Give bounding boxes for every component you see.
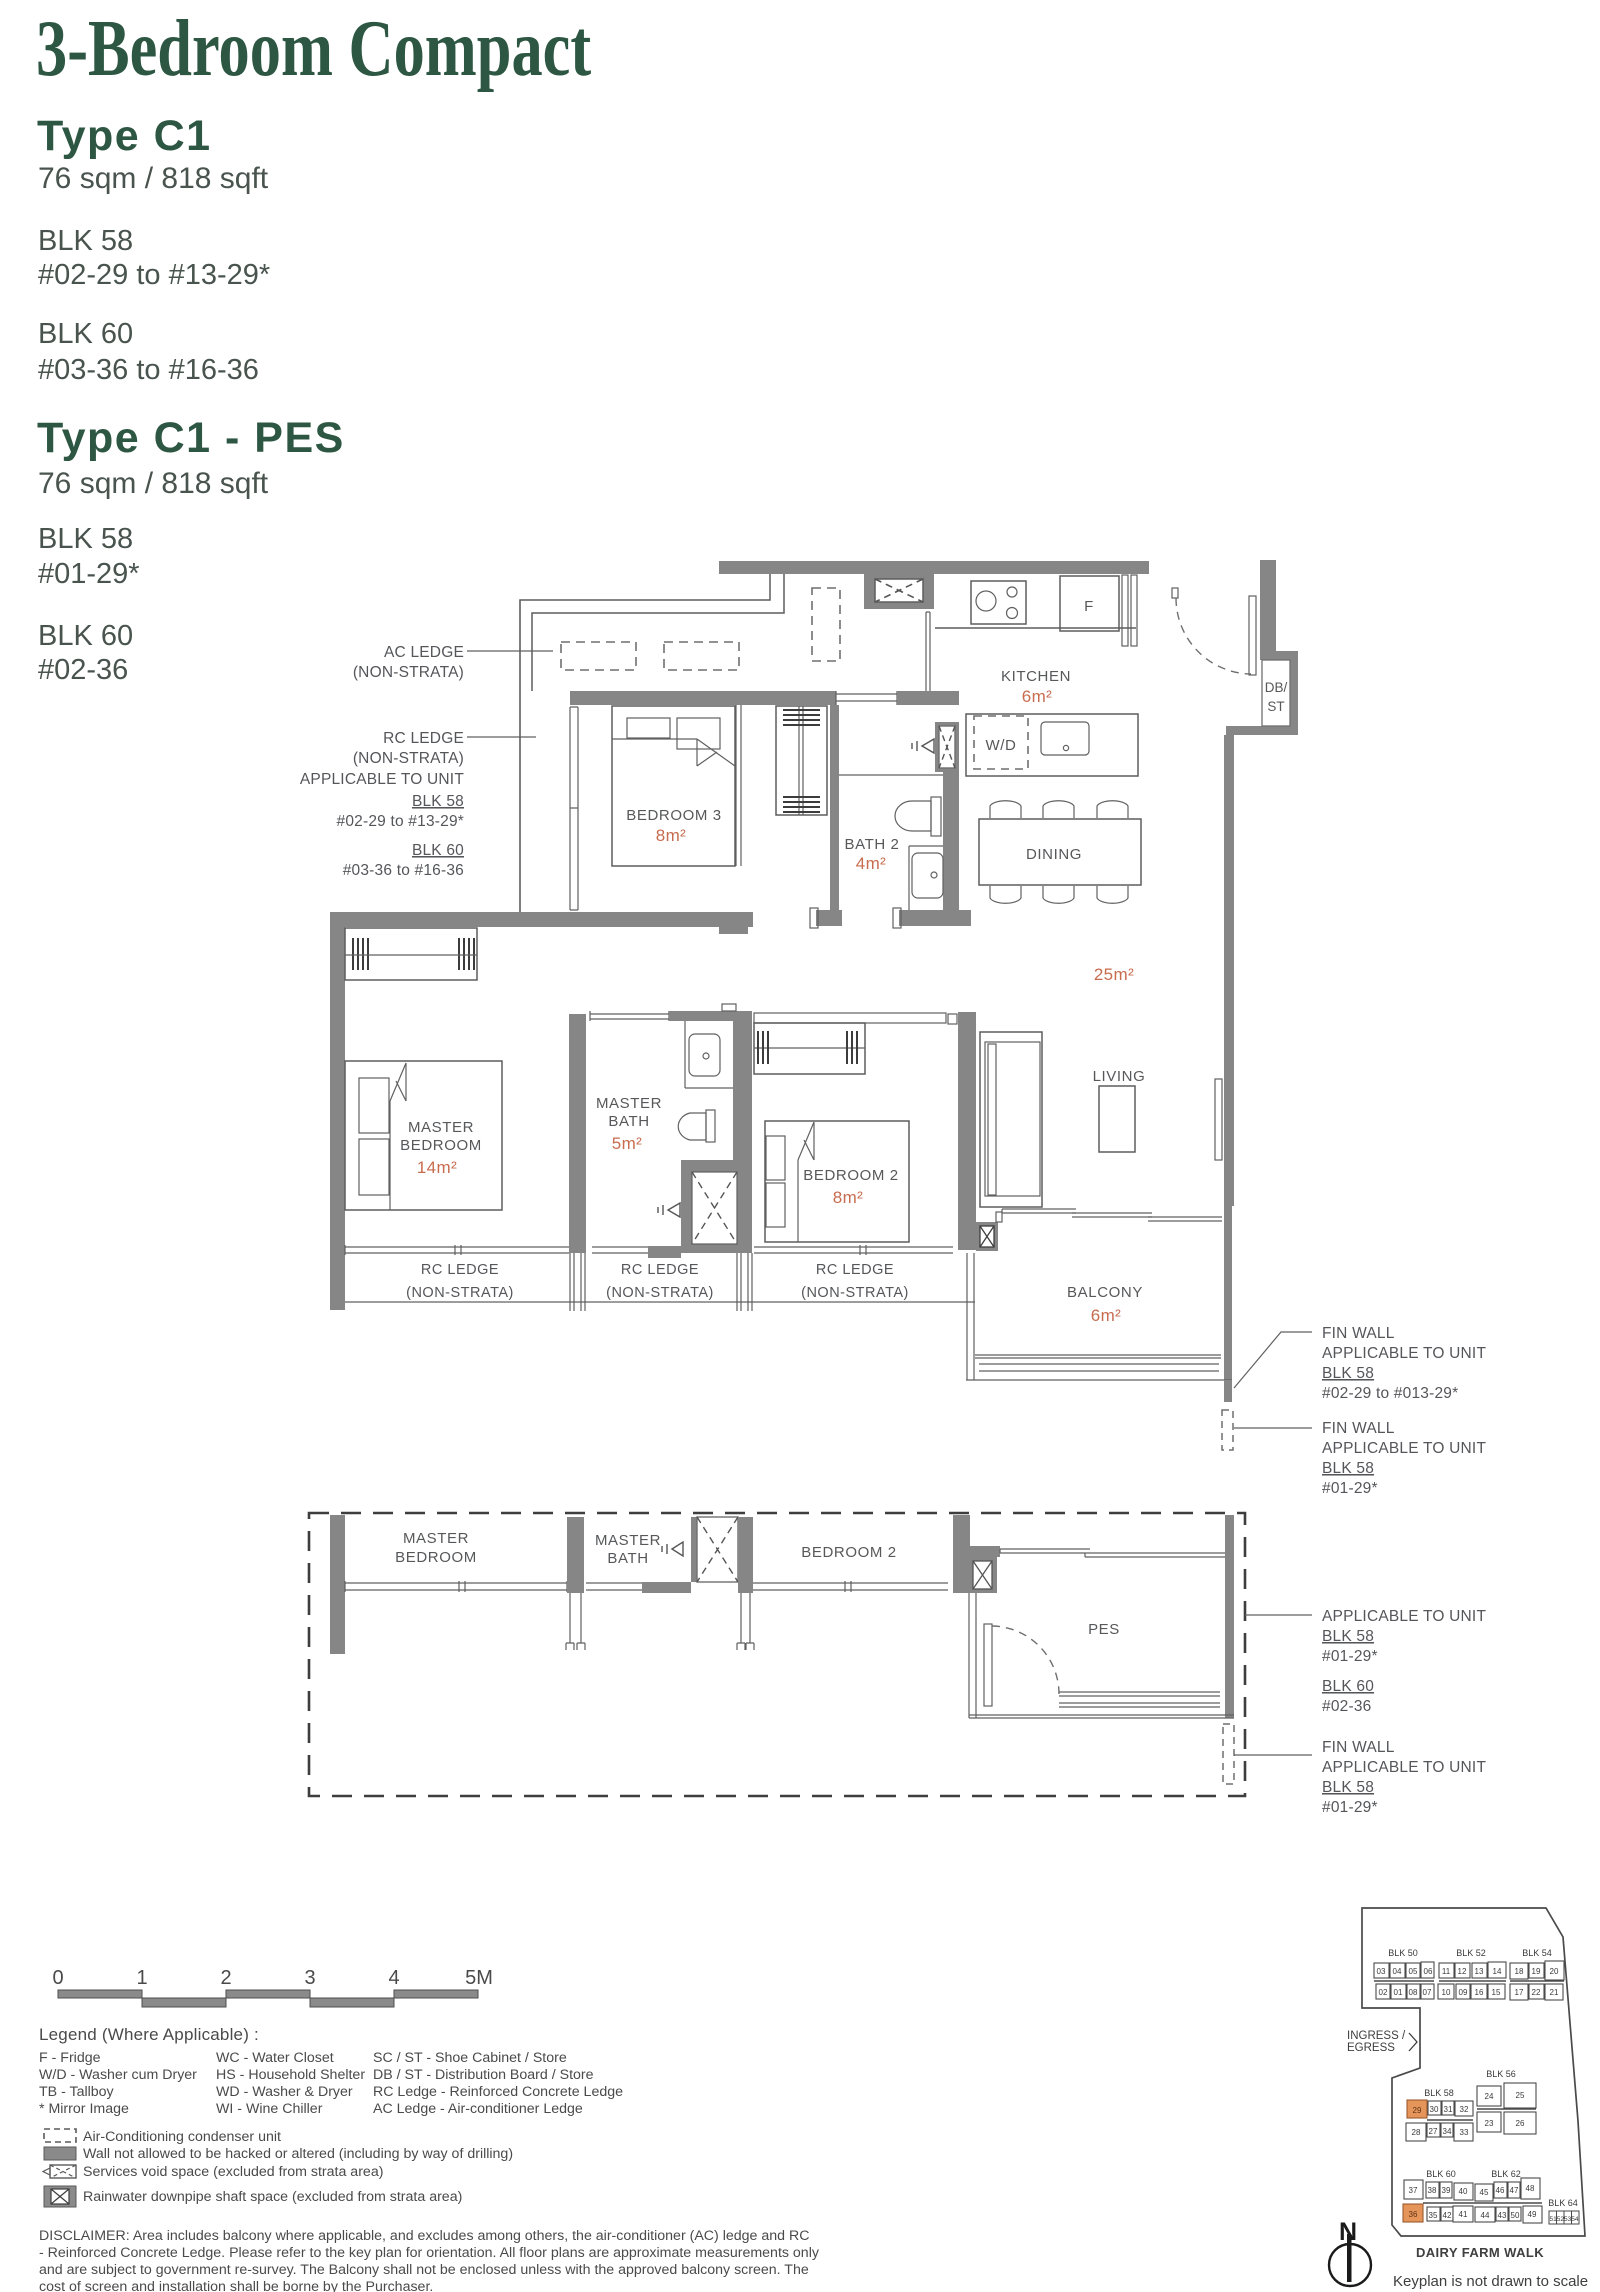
svg-text:08: 08	[1409, 1988, 1418, 1997]
svg-text:33: 33	[1460, 2128, 1469, 2137]
svg-text:50: 50	[1511, 2211, 1520, 2220]
svg-text:05: 05	[1409, 1967, 1418, 1976]
svg-text:FIN WALL: FIN WALL	[1322, 1739, 1395, 1756]
svg-text:36: 36	[1409, 2210, 1418, 2219]
svg-text:24: 24	[1485, 2092, 1494, 2101]
svg-text:KITCHEN: KITCHEN	[1001, 668, 1071, 685]
svg-text:02: 02	[1379, 1988, 1388, 1997]
svg-text:BLK 60: BLK 60	[38, 318, 133, 350]
svg-text:DB/: DB/	[1265, 680, 1288, 695]
svg-text:45: 45	[1480, 2188, 1489, 2197]
svg-text:SC / ST - Shoe Cabinet / Store: SC / ST - Shoe Cabinet / Store	[373, 2050, 567, 2066]
svg-text:BLK 58: BLK 58	[1322, 1628, 1374, 1645]
svg-text:43: 43	[1498, 2211, 1507, 2220]
svg-text:BEDROOM 2: BEDROOM 2	[801, 1544, 896, 1561]
svg-text:and are subject to government: and are subject to government re-survey.…	[39, 2262, 809, 2278]
svg-text:FIN WALL: FIN WALL	[1322, 1420, 1395, 1437]
svg-text:2: 2	[220, 1967, 231, 1989]
svg-text:F: F	[1084, 598, 1094, 615]
svg-text:(NON-STRATA): (NON-STRATA)	[353, 750, 464, 767]
svg-text:#01-29*: #01-29*	[1322, 1799, 1378, 1816]
svg-text:#01-29*: #01-29*	[1322, 1648, 1378, 1665]
svg-text:BLK 58: BLK 58	[1322, 1779, 1374, 1796]
svg-text:BEDROOM: BEDROOM	[395, 1549, 477, 1566]
svg-text:(NON-STRATA): (NON-STRATA)	[406, 1285, 514, 1301]
svg-text:BEDROOM 2: BEDROOM 2	[803, 1167, 898, 1184]
svg-text:BATH: BATH	[607, 1550, 648, 1567]
svg-text:MASTER: MASTER	[596, 1095, 662, 1112]
svg-text:04: 04	[1393, 1967, 1402, 1976]
svg-text:F - Fridge: F - Fridge	[39, 2050, 101, 2066]
svg-text:8m²: 8m²	[833, 1188, 863, 1207]
svg-text:DISCLAIMER: Area includes balc: DISCLAIMER: Area includes balcony where …	[39, 2228, 809, 2244]
svg-text:W/D: W/D	[986, 737, 1017, 754]
svg-text:26: 26	[1516, 2119, 1525, 2128]
svg-text:PES: PES	[1088, 1621, 1120, 1638]
svg-text:MASTER: MASTER	[595, 1532, 661, 1549]
svg-text:06: 06	[1424, 1967, 1433, 1976]
svg-text:BLK 58: BLK 58	[412, 793, 464, 810]
svg-text:FIN WALL: FIN WALL	[1322, 1325, 1395, 1342]
svg-text:#01-29*: #01-29*	[38, 558, 140, 590]
svg-text:BLK 58: BLK 58	[1322, 1460, 1374, 1477]
svg-text:RC LEDGE: RC LEDGE	[816, 1262, 894, 1278]
svg-text:#02-36: #02-36	[1322, 1698, 1371, 1715]
svg-text:BLK 54: BLK 54	[1522, 1948, 1552, 1958]
svg-text:34: 34	[1443, 2127, 1452, 2136]
svg-text:#02-29 to #13-29*: #02-29 to #13-29*	[38, 259, 270, 291]
svg-text:14: 14	[1493, 1967, 1502, 1976]
svg-text:APPLICABLE TO UNIT: APPLICABLE TO UNIT	[1322, 1608, 1486, 1625]
svg-text:BLK 62: BLK 62	[1491, 2169, 1521, 2179]
svg-text:28: 28	[1412, 2128, 1421, 2137]
svg-text:76 sqm / 818 sqft: 76 sqm / 818 sqft	[38, 467, 269, 500]
svg-text:BATH: BATH	[608, 1113, 649, 1130]
svg-text:#02-29 to #013-29*: #02-29 to #013-29*	[1322, 1385, 1458, 1402]
svg-text:RC Ledge - Reinforced Concrete: RC Ledge - Reinforced Concrete Ledge	[373, 2084, 623, 2100]
svg-text:#03-36 to #16-36: #03-36 to #16-36	[38, 354, 259, 386]
svg-text:DAIRY FARM WALK: DAIRY FARM WALK	[1416, 2245, 1544, 2260]
svg-text:32: 32	[1460, 2105, 1469, 2114]
svg-text:47: 47	[1510, 2186, 1519, 2195]
svg-text:46: 46	[1496, 2186, 1505, 2195]
svg-text:15: 15	[1492, 1988, 1501, 1997]
svg-text:RC LEDGE: RC LEDGE	[621, 1262, 699, 1278]
svg-text:41: 41	[1459, 2210, 1468, 2219]
svg-text:4: 4	[388, 1967, 399, 1989]
svg-text:Keyplan is not drawn to scale: Keyplan is not drawn to scale	[1393, 2273, 1588, 2290]
svg-text:39: 39	[1442, 2186, 1451, 2195]
svg-text:BATH 2: BATH 2	[844, 836, 899, 853]
svg-text:07: 07	[1423, 1988, 1432, 1997]
svg-text:4m²: 4m²	[856, 854, 886, 873]
svg-text:Legend (Where Applicable) :: Legend (Where Applicable) :	[39, 2025, 259, 2044]
svg-text:BLK 58: BLK 58	[38, 523, 133, 555]
svg-text:BLK 60: BLK 60	[38, 620, 133, 652]
svg-text:BLK 64: BLK 64	[1548, 2198, 1578, 2208]
svg-text:22: 22	[1532, 1988, 1541, 1997]
svg-text:(NON-STRATA): (NON-STRATA)	[801, 1285, 909, 1301]
svg-text:13: 13	[1475, 1967, 1484, 1976]
svg-text:WC - Water Closet: WC - Water Closet	[216, 2050, 334, 2066]
svg-text:MASTER: MASTER	[408, 1119, 474, 1136]
svg-text:WI - Wine Chiller: WI - Wine Chiller	[216, 2101, 323, 2117]
svg-text:37: 37	[1409, 2186, 1418, 2195]
svg-text:BALCONY: BALCONY	[1067, 1284, 1143, 1301]
svg-text:#02-29 to #13-29*: #02-29 to #13-29*	[337, 813, 465, 830]
svg-text:51525354: 51525354	[1550, 2216, 1579, 2223]
svg-text:3-Bedroom Compact: 3-Bedroom Compact	[36, 4, 591, 93]
svg-text:25: 25	[1516, 2091, 1525, 2100]
svg-text:DB / ST - Distribution Board /: DB / ST - Distribution Board / Store	[373, 2067, 594, 2083]
svg-text:BLK 60: BLK 60	[1426, 2169, 1456, 2179]
svg-text:Rainwater downpipe shaft space: Rainwater downpipe shaft space (excluded…	[83, 2189, 462, 2205]
svg-text:3: 3	[304, 1967, 315, 1989]
svg-text:19: 19	[1532, 1967, 1541, 1976]
svg-text:10: 10	[1442, 1988, 1451, 1997]
svg-text:W/D - Washer cum Dryer: W/D - Washer cum Dryer	[39, 2067, 197, 2083]
svg-text:49: 49	[1528, 2210, 1537, 2219]
svg-text:DINING: DINING	[1026, 846, 1082, 863]
svg-text:APPLICABLE TO UNIT: APPLICABLE TO UNIT	[1322, 1759, 1486, 1776]
svg-text:42: 42	[1443, 2211, 1452, 2220]
svg-text:1: 1	[136, 1967, 147, 1989]
svg-text:EGRESS: EGRESS	[1347, 2042, 1395, 2054]
svg-text:WD - Washer & Dryer: WD - Washer & Dryer	[216, 2084, 353, 2100]
svg-text:38: 38	[1428, 2186, 1437, 2195]
svg-text:48: 48	[1526, 2184, 1535, 2193]
svg-text:cost of screen and installatio: cost of screen and installation shall be…	[39, 2279, 433, 2292]
svg-text:Type C1 - PES: Type C1 - PES	[37, 414, 345, 462]
svg-text:03: 03	[1377, 1967, 1386, 1976]
svg-text:25m²: 25m²	[1094, 965, 1134, 984]
svg-text:0: 0	[52, 1967, 63, 1989]
svg-text:11: 11	[1442, 1967, 1451, 1976]
svg-text:6m²: 6m²	[1091, 1306, 1121, 1325]
svg-text:MASTER: MASTER	[403, 1530, 469, 1547]
svg-text:APPLICABLE TO UNIT: APPLICABLE TO UNIT	[1322, 1440, 1486, 1457]
svg-text:40: 40	[1459, 2187, 1468, 2196]
svg-text:30: 30	[1430, 2105, 1439, 2114]
svg-text:5m²: 5m²	[612, 1134, 642, 1153]
svg-text:#03-36 to #16-36: #03-36 to #16-36	[343, 862, 464, 879]
svg-text:01: 01	[1394, 1988, 1403, 1997]
svg-text:16: 16	[1475, 1988, 1484, 1997]
svg-text:BLK 52: BLK 52	[1456, 1948, 1486, 1958]
svg-text:#02-36: #02-36	[38, 654, 128, 686]
svg-text:APPLICABLE TO UNIT: APPLICABLE TO UNIT	[300, 771, 464, 788]
svg-text:LIVING: LIVING	[1093, 1068, 1146, 1085]
svg-text:31: 31	[1444, 2105, 1453, 2114]
svg-text:TB - Tallboy: TB - Tallboy	[39, 2084, 115, 2100]
svg-text:RC LEDGE: RC LEDGE	[383, 730, 464, 747]
svg-text:29: 29	[1413, 2106, 1422, 2115]
svg-text:27: 27	[1429, 2127, 1438, 2136]
svg-text:BLK 56: BLK 56	[1486, 2069, 1516, 2079]
svg-text:23: 23	[1485, 2119, 1494, 2128]
svg-text:5M: 5M	[465, 1967, 493, 1989]
svg-text:APPLICABLE TO UNIT: APPLICABLE TO UNIT	[1322, 1345, 1486, 1362]
svg-text:12: 12	[1458, 1967, 1467, 1976]
svg-text:AC LEDGE: AC LEDGE	[384, 644, 464, 661]
svg-text:#01-29*: #01-29*	[1322, 1480, 1378, 1497]
svg-text:20: 20	[1550, 1967, 1559, 1976]
svg-text:Wall not allowed to be hacked: Wall not allowed to be hacked or altered…	[83, 2146, 513, 2162]
svg-text:* Mirror Image: * Mirror Image	[39, 2101, 129, 2117]
svg-text:INGRESS /: INGRESS /	[1347, 2030, 1406, 2042]
svg-text:76 sqm / 818 sqft: 76 sqm / 818 sqft	[38, 162, 269, 195]
svg-text:RC LEDGE: RC LEDGE	[421, 1262, 499, 1278]
svg-text:Air-Conditioning condenser uni: Air-Conditioning condenser unit	[83, 2129, 281, 2145]
svg-text:(NON-STRATA): (NON-STRATA)	[353, 664, 464, 681]
svg-text:BLK 60: BLK 60	[412, 842, 464, 859]
svg-text:BEDROOM: BEDROOM	[400, 1137, 482, 1154]
svg-text:(NON-STRATA): (NON-STRATA)	[606, 1285, 714, 1301]
svg-text:BLK 58: BLK 58	[1322, 1365, 1374, 1382]
svg-text:18: 18	[1515, 1967, 1524, 1976]
svg-text:44: 44	[1481, 2211, 1490, 2220]
svg-text:35: 35	[1429, 2211, 1438, 2220]
svg-text:BLK 50: BLK 50	[1388, 1948, 1418, 1958]
svg-text:09: 09	[1459, 1988, 1468, 1997]
svg-text:21: 21	[1550, 1988, 1559, 1997]
svg-text:Services void space (excluded: Services void space (excluded from strat…	[83, 2164, 383, 2180]
svg-text:8m²: 8m²	[656, 826, 686, 845]
svg-text:BLK 60: BLK 60	[1322, 1678, 1374, 1695]
svg-text:ST: ST	[1267, 699, 1284, 714]
svg-text:AC Ledge - Air-conditioner Led: AC Ledge - Air-conditioner Ledge	[373, 2101, 583, 2117]
svg-text:BLK 58: BLK 58	[38, 225, 133, 257]
svg-text:6m²: 6m²	[1022, 687, 1052, 706]
svg-text:17: 17	[1515, 1988, 1524, 1997]
svg-text:HS - Household Shelter: HS - Household Shelter	[216, 2067, 365, 2083]
svg-text:BEDROOM 3: BEDROOM 3	[626, 807, 721, 824]
svg-text:14m²: 14m²	[417, 1158, 457, 1177]
svg-text:- Reinforced Concrete Ledge. P: - Reinforced Concrete Ledge. Please refe…	[39, 2245, 820, 2261]
svg-text:Type C1: Type C1	[37, 112, 212, 160]
svg-text:BLK 58: BLK 58	[1424, 2088, 1454, 2098]
